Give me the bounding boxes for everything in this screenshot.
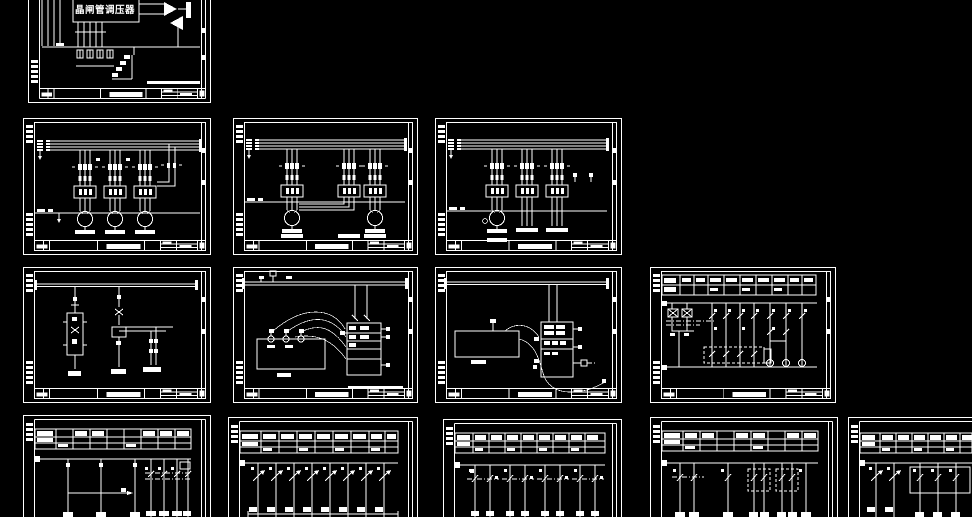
feeder-schematic [35,429,191,517]
sheet-r2c3[interactable] [435,118,622,255]
sheet-frame [436,119,622,255]
sheet-r4c1[interactable] [23,415,211,517]
sheet-r1c1[interactable]: 晶闸管调压器 [28,0,211,103]
sheet-frame [651,418,838,517]
sheet-frame [24,416,211,517]
sheet-frame [436,268,622,403]
regulator-schematic: 晶闸管调压器 [42,0,200,84]
sheet-r4c5[interactable] [848,417,972,517]
sheet-r2c1[interactable] [23,118,211,255]
power-schematic [35,139,202,234]
sheet-r3c4[interactable] [650,267,836,403]
sheet-r3c1[interactable] [23,267,211,403]
power-schematic [245,138,407,238]
sheet-r3c2[interactable] [233,267,418,403]
cad-canvas[interactable]: 晶闸管调压器 [0,0,972,517]
control-schematic [34,280,198,376]
regulator-label: 晶闸管调压器 [75,4,135,16]
sheet-r4c4[interactable] [650,417,838,517]
ladder-schematic [662,275,817,370]
wiring-diagram [444,278,609,392]
power-schematic [447,138,609,242]
feeder-schematic [860,433,972,517]
wiring-diagram [242,271,408,389]
sheet-frame [24,268,211,403]
feeder-schematic [455,433,605,517]
sheet-r3c3[interactable] [435,267,622,403]
sheet-r4c3[interactable] [443,419,622,517]
feeder-schematic [662,431,818,517]
sheet-frame [234,119,418,255]
sheet-r4c2[interactable] [228,417,418,517]
sheet-frame [651,268,836,403]
feeder-schematic [240,431,398,517]
sheet-r2c2[interactable] [233,118,418,255]
